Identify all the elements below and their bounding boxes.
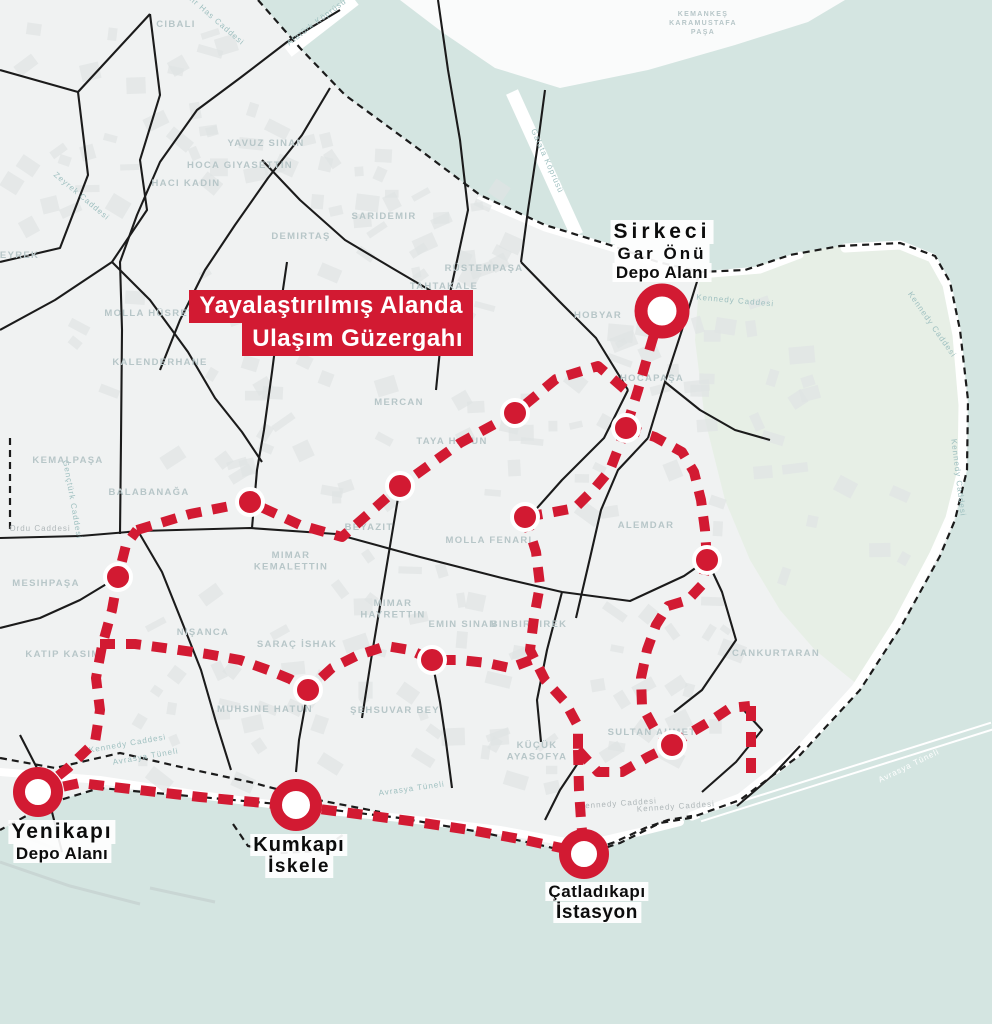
map-title-line1: Yayalaştırılmış Alanda	[189, 290, 473, 323]
terminal-label-line: Yenikapı	[8, 820, 115, 844]
area-label: HACI KADIN	[152, 178, 221, 189]
area-label: MUHSINE HATUN	[217, 704, 313, 715]
area-label: YAVUZ SINAN	[227, 138, 304, 149]
area-label: KALENDERHANE	[112, 357, 207, 368]
area-label: BALABANAĞA	[108, 486, 189, 498]
terminal-sirkeci	[641, 290, 683, 332]
area-label: DEMIRTAŞ	[271, 231, 330, 242]
route-stop	[659, 732, 685, 758]
area-label: MERCAN	[374, 397, 424, 408]
terminal-label-line: Çatladıkapı	[545, 882, 648, 901]
route-stop	[105, 564, 131, 590]
terminal-label-line: Depo Alanı	[13, 844, 111, 863]
area-label: HOCA GIYASETTIN	[187, 160, 293, 171]
area-label: BEYAZIT	[345, 522, 394, 533]
route-stop	[613, 415, 639, 441]
terminal-label-kumkapi: Kumkapıİskele	[250, 834, 347, 878]
terminal-catladikapi	[565, 835, 603, 873]
terminal-label-line: İstasyon	[553, 902, 641, 923]
route-stop	[295, 677, 321, 703]
area-label: SARAÇ İSHAK	[257, 639, 337, 650]
area-label: NIŞANCA	[177, 627, 229, 638]
map-title: Yayalaştırılmış Alanda Ulaşım Güzergahı	[189, 290, 473, 356]
area-label: RÜSTEMPAŞA	[445, 263, 524, 274]
terminal-label-line: Sirkeci	[611, 220, 714, 244]
terminal-label-line: İskele	[265, 856, 333, 877]
map: Kadir Has CaddesiAtatürk KöprüsüGalata K…	[0, 0, 992, 1024]
area-label: MOLLA HÜSREV	[104, 308, 195, 319]
area-label: EMIN SINAN	[429, 619, 498, 630]
area-label: MOLLA FENARI	[445, 535, 532, 546]
route-stop	[387, 473, 413, 499]
area-label: HOBYAR	[574, 310, 622, 321]
area-label: HOCAPAŞA	[620, 373, 684, 384]
area-label: MESIHPAŞA	[12, 578, 79, 589]
terminal-label-yenikapi: YenikapıDepo Alanı	[8, 820, 115, 863]
area-label: CIBALI	[156, 19, 195, 30]
route-stop	[512, 504, 538, 530]
area-label: CANKURTARAN	[732, 648, 820, 659]
terminal-label-sirkeci: SirkeciGar ÖnüDepo Alanı	[611, 220, 714, 283]
terminal-label-catladikapi: Çatladıkapıİstasyon	[545, 882, 648, 923]
terminal-label-line: Kumkapı	[250, 834, 347, 856]
map-title-line2: Ulaşım Güzergahı	[242, 323, 473, 356]
street-label: Ordu Caddesi	[9, 524, 70, 533]
area-label: KEMALPAŞA	[32, 455, 103, 466]
area-label: ZEYREK	[0, 250, 39, 261]
area-label: ALEMDAR	[618, 520, 675, 531]
route-stop	[419, 647, 445, 673]
route-stop	[237, 489, 263, 515]
route-stop	[694, 547, 720, 573]
area-label: KATIP KASIM	[25, 649, 100, 660]
terminal-label-line: Gar Önü	[614, 244, 709, 263]
map-canvas: Kadir Has CaddesiAtatürk KöprüsüGalata K…	[0, 0, 992, 1024]
area-label: TAYA HATUN	[416, 436, 487, 447]
route-stop	[502, 400, 528, 426]
terminal-kumkapi	[276, 785, 316, 825]
terminal-yenikapi	[19, 773, 57, 811]
area-label: ŞEHSUVAR BEY	[350, 705, 440, 716]
area-label: SARIDEMIR	[351, 211, 416, 222]
terminal-label-line: Depo Alanı	[613, 263, 711, 282]
